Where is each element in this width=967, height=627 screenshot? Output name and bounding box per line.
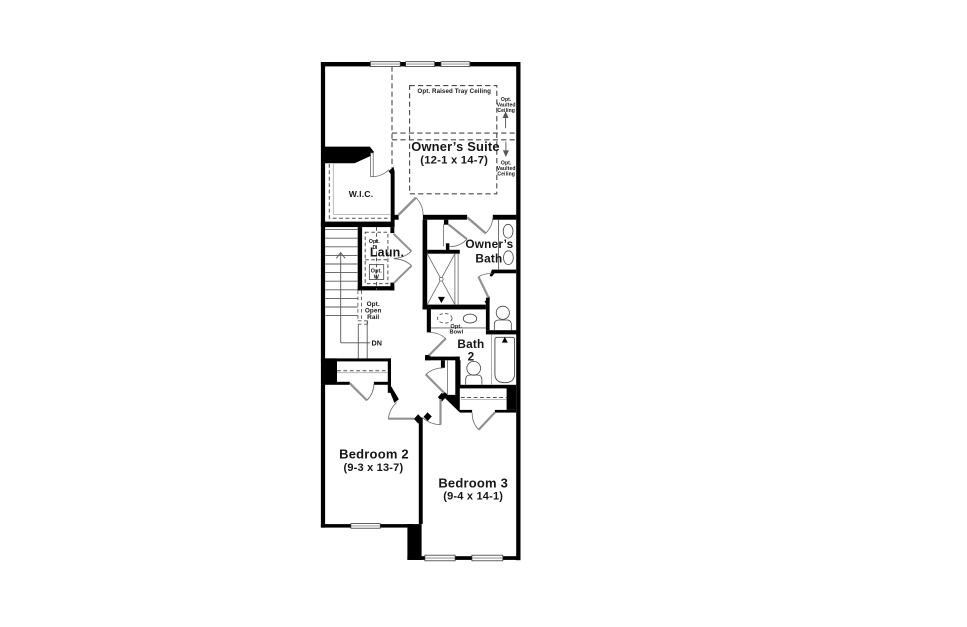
svg-text:(9-4 x 14-1): (9-4 x 14-1) [443,490,503,502]
svg-text:D: D [373,245,377,251]
svg-text:Bath: Bath [475,252,502,266]
svg-text:Bedroom 3: Bedroom 3 [438,476,508,491]
svg-text:W: W [374,274,380,280]
svg-text:(9-3 x 13-7): (9-3 x 13-7) [343,462,403,474]
svg-text:2: 2 [468,349,475,363]
svg-text:Bowl: Bowl [450,329,464,335]
svg-text:Bedroom 2: Bedroom 2 [339,447,409,462]
svg-text:Owner’s Suite: Owner’s Suite [411,139,500,154]
svg-text:Owner’s: Owner’s [465,237,513,251]
svg-text:Ceiling: Ceiling [497,108,515,114]
svg-text:Opt. Raised Tray Ceiling: Opt. Raised Tray Ceiling [417,88,491,95]
svg-text:W.I.C.: W.I.C. [349,189,374,199]
svg-text:Rail: Rail [367,314,379,321]
svg-text:DN: DN [372,338,383,347]
svg-text:Ceiling: Ceiling [497,172,515,178]
svg-text:(12-1 x 14-7): (12-1 x 14-7) [420,155,488,167]
